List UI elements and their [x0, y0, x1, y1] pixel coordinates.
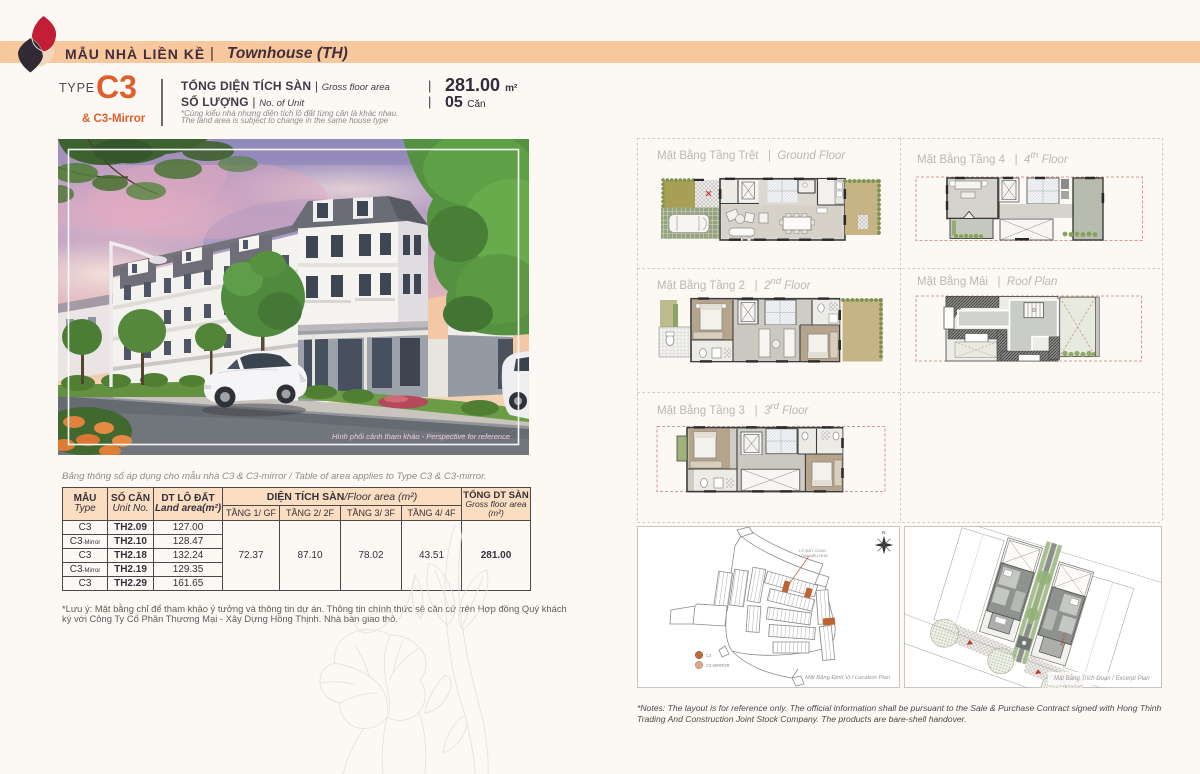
svg-text:LOẠI MẪU NHÀ: LOẠI MẪU NHÀ: [799, 553, 828, 558]
svg-text:N: N: [882, 530, 885, 535]
svg-text:Mặt Bằng Định Vị / Location Pl: Mặt Bằng Định Vị / Location Plan: [805, 674, 890, 681]
svg-text:C3 MIRROR: C3 MIRROR: [706, 663, 730, 668]
svg-text:Mặt Bằng Trích Đoạn / Excerpt: Mặt Bằng Trích Đoạn / Excerpt Plan: [1054, 675, 1150, 682]
svg-text:C3: C3: [706, 653, 712, 658]
svg-text:Hình phối cảnh tham khảo - Per: Hình phối cảnh tham khảo - Perspective f…: [332, 432, 510, 441]
